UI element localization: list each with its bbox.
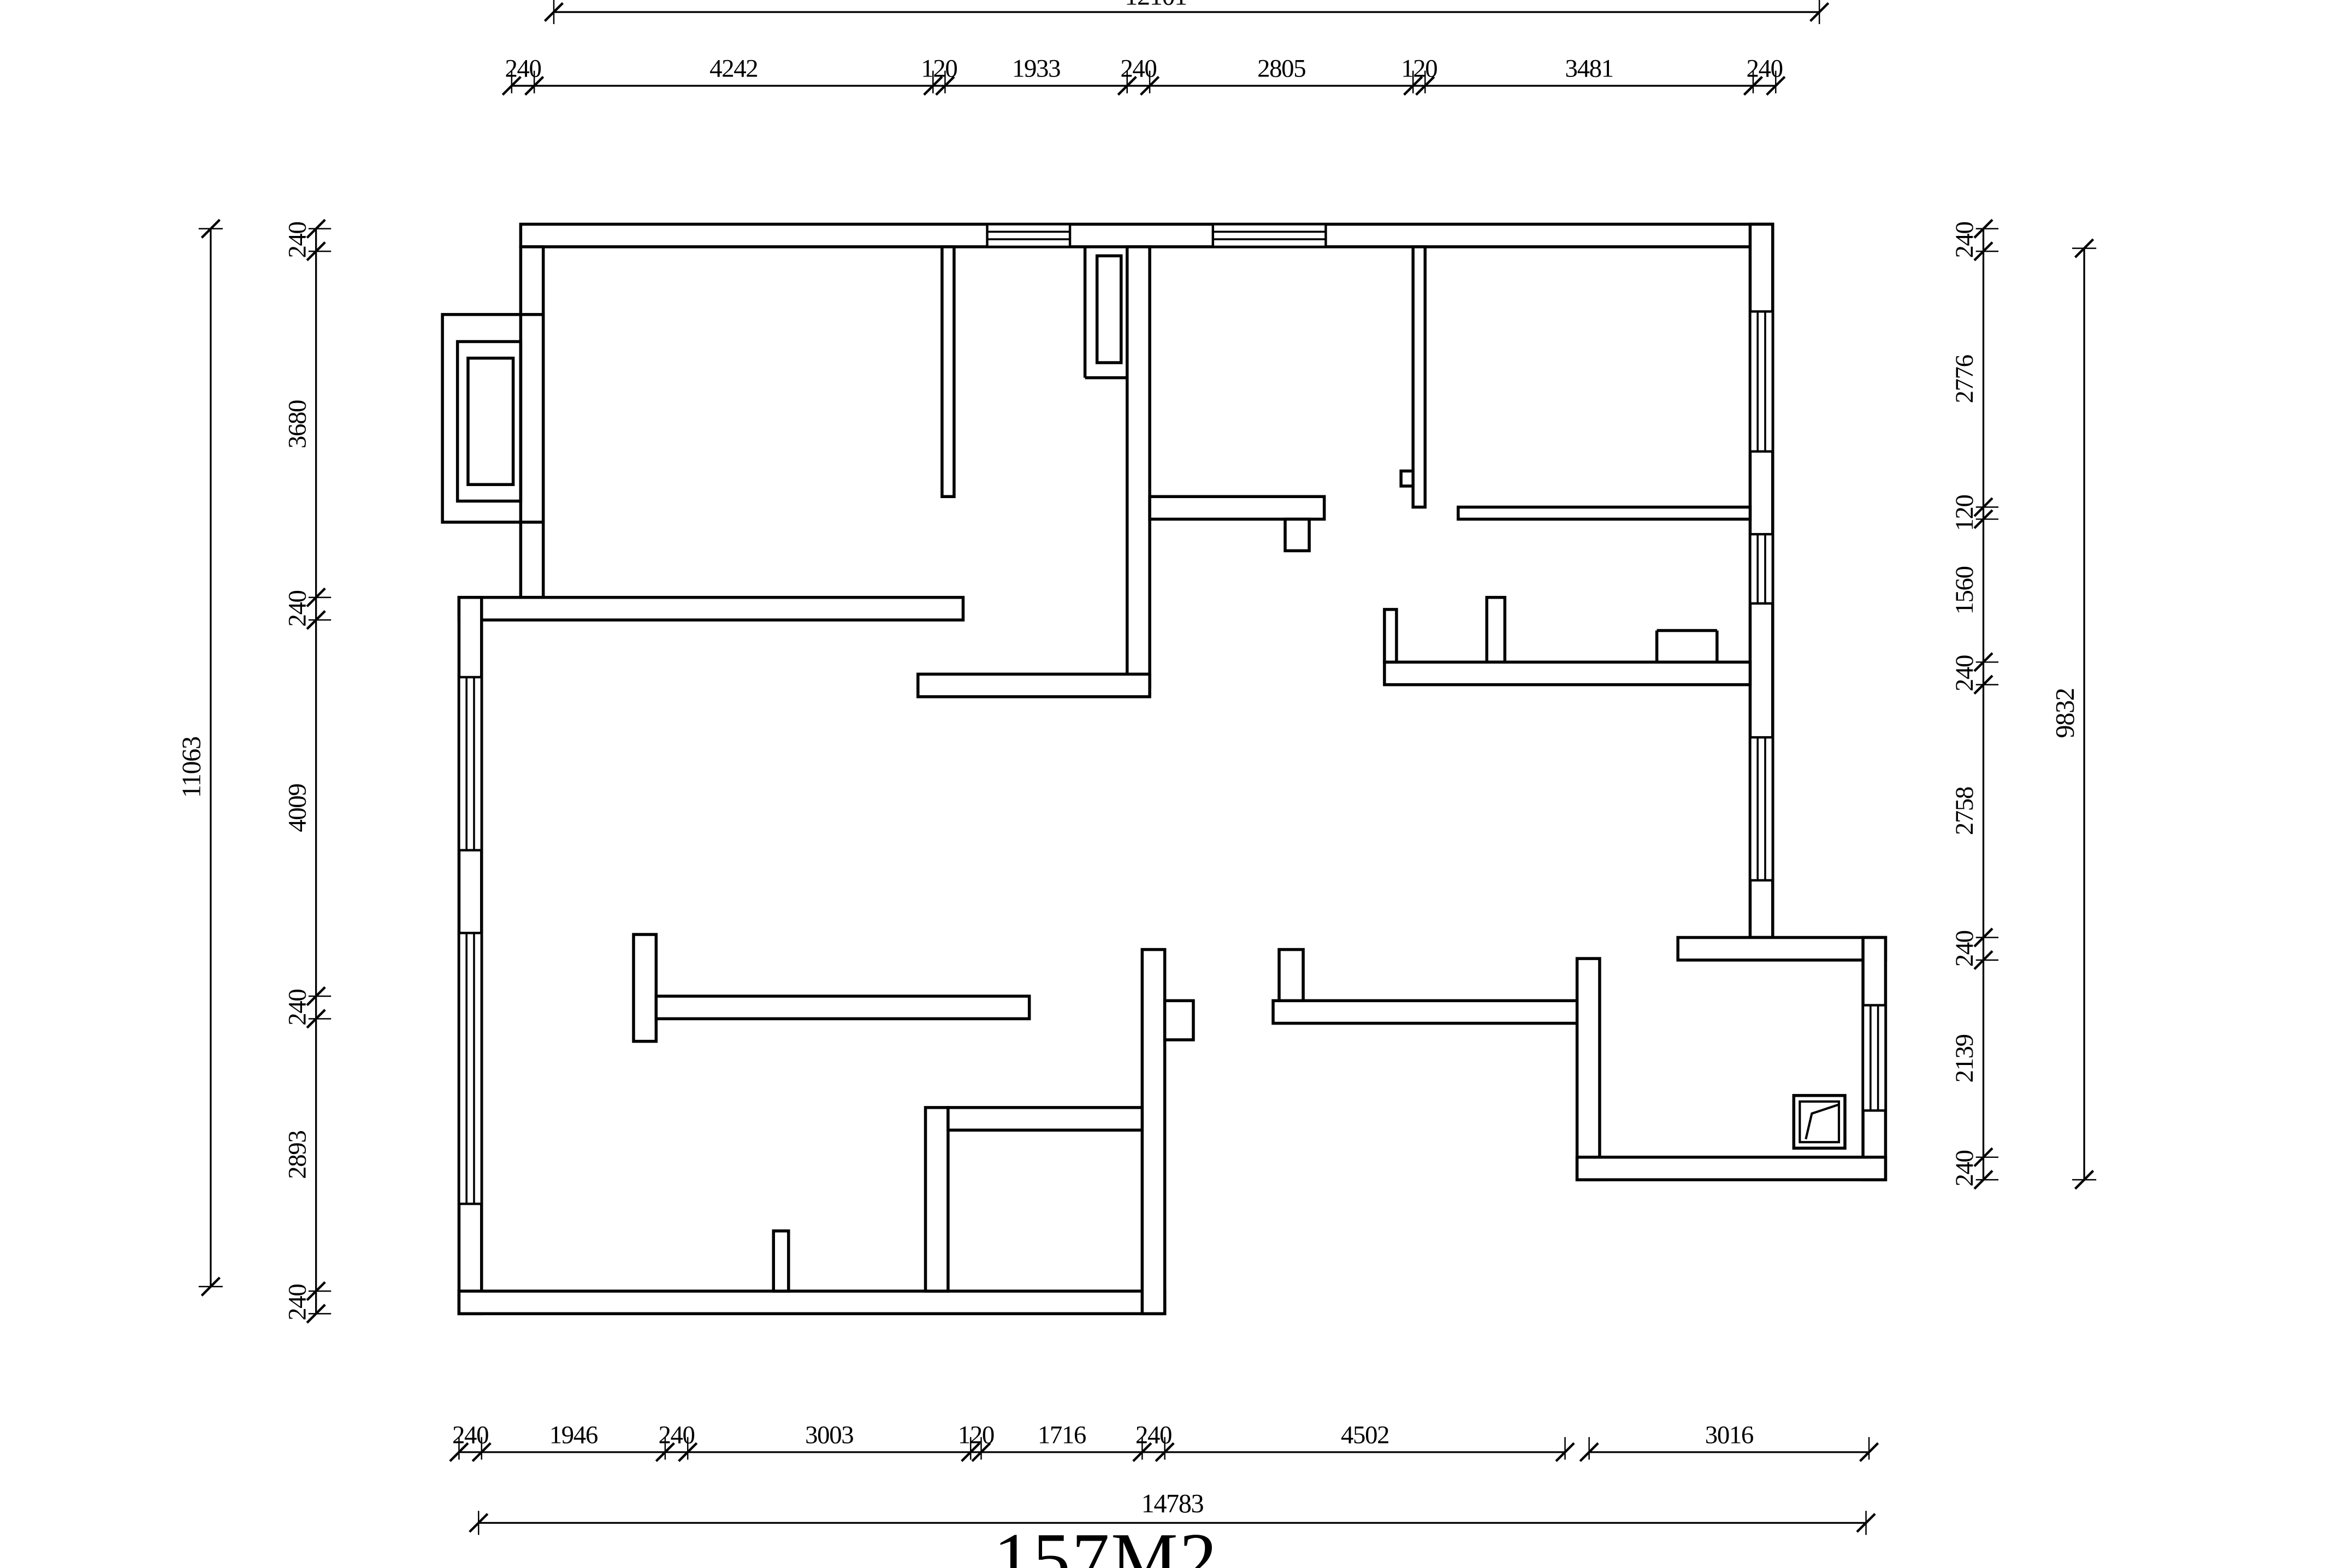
bedroom2-bedroom3-partition bbox=[1413, 247, 1425, 507]
window-right-1 bbox=[1750, 311, 1772, 451]
dim-label: 120 bbox=[958, 1421, 994, 1449]
dim-label: 240 bbox=[1950, 1150, 1979, 1186]
dim-label: 2893 bbox=[283, 1131, 311, 1179]
plan-title: 157M2 bbox=[993, 1517, 1218, 1568]
block-top-wall bbox=[1678, 938, 1885, 960]
bedroom1-hall-partition bbox=[942, 247, 954, 496]
shower-icon bbox=[1794, 1096, 1845, 1148]
window-top-1 bbox=[987, 224, 1070, 247]
dim-label: 120 bbox=[921, 55, 957, 83]
dim-total-label: 12101 bbox=[1125, 0, 1187, 10]
bottom-wall bbox=[459, 1291, 1164, 1313]
window-left-2-frame bbox=[459, 933, 481, 1204]
living-stub bbox=[773, 1231, 789, 1291]
dim-label: 4242 bbox=[709, 55, 758, 83]
dim-label: 4502 bbox=[1341, 1421, 1389, 1449]
dim-top-total: 12101 bbox=[545, 0, 1828, 24]
dim-label: 240 bbox=[1135, 1421, 1172, 1449]
bath1-bottom-wall bbox=[1385, 662, 1750, 684]
dim-total-label: 11063 bbox=[177, 737, 206, 798]
dim-total-label: 14783 bbox=[1141, 1489, 1204, 1518]
dim-label: 120 bbox=[1950, 495, 1979, 531]
top-wall bbox=[520, 224, 1772, 247]
dim-label: 3481 bbox=[1565, 55, 1613, 83]
block-left-wall bbox=[1577, 958, 1600, 1180]
dim-bottom-chain-2: 3016 bbox=[1580, 1421, 1878, 1461]
dim-label: 240 bbox=[283, 990, 311, 1026]
dim-right-chain: 2402776120156024027582402139240 bbox=[1950, 220, 1998, 1188]
window-right-2-frame bbox=[1750, 534, 1772, 603]
dim-label: 240 bbox=[1950, 655, 1979, 691]
dining-wall bbox=[918, 674, 1150, 696]
dim-label: 1560 bbox=[1950, 566, 1979, 614]
bedroom2-door-stub bbox=[1285, 519, 1309, 551]
dim-top-chain: 2404242120193324028051203481240 bbox=[502, 55, 1784, 95]
hall-wall-a bbox=[1142, 950, 1164, 1314]
dim-label: 120 bbox=[1401, 55, 1437, 83]
dim-label: 3680 bbox=[283, 400, 311, 448]
window-block-right-frame bbox=[1863, 1005, 1885, 1111]
bath1-top-wall bbox=[1458, 507, 1750, 519]
bath1-wall-end bbox=[1385, 610, 1397, 662]
window-top-2-frame bbox=[1213, 224, 1326, 247]
dim-label: 1933 bbox=[1012, 55, 1060, 83]
balcony-inner bbox=[468, 358, 513, 484]
dim-label: 240 bbox=[1747, 55, 1783, 83]
floor-plan-drawing: 2404242120193324028051203481240240194624… bbox=[0, 0, 2325, 1568]
dim-label: 2758 bbox=[1950, 787, 1979, 835]
dim-bottom-chain: 2401946240300312017162404502 bbox=[450, 1421, 1574, 1461]
bath2-left-wall bbox=[926, 1108, 948, 1291]
fixtures-layer bbox=[1794, 1096, 1845, 1148]
window-right-3 bbox=[1750, 737, 1772, 880]
dim-label: 240 bbox=[283, 1285, 311, 1321]
window-right-3-frame bbox=[1750, 737, 1772, 880]
block-bottom-wall bbox=[1577, 1157, 1886, 1180]
floor-plan-page: 2404242120193324028051203481240240194624… bbox=[0, 0, 2325, 1568]
dim-label: 240 bbox=[283, 222, 311, 258]
dim-label: 240 bbox=[283, 590, 311, 626]
partition-tab bbox=[1401, 471, 1413, 486]
dim-label: 240 bbox=[505, 55, 541, 83]
corridor-wall-b bbox=[1273, 1001, 1588, 1023]
dim-label: 240 bbox=[658, 1421, 694, 1449]
kitchen-wall-horizontal bbox=[656, 996, 1029, 1019]
dim-total-label: 9832 bbox=[2051, 689, 2080, 738]
window-right-2 bbox=[1750, 534, 1772, 603]
kitchen-wall-vertical bbox=[634, 934, 656, 1042]
window-left-2 bbox=[459, 933, 481, 1204]
bath1-left-stub bbox=[1487, 597, 1505, 662]
bedroom2-bottom-wall bbox=[1150, 496, 1324, 519]
dim-left-total: 11063 bbox=[177, 220, 222, 1295]
dim-label: 240 bbox=[452, 1421, 488, 1449]
dim-label: 240 bbox=[1950, 222, 1979, 258]
window-left-1-frame bbox=[459, 677, 481, 850]
entry-pier-inner bbox=[1097, 256, 1121, 363]
dim-label: 240 bbox=[1120, 55, 1156, 83]
window-right-1-frame bbox=[1750, 311, 1772, 451]
dim-label: 3003 bbox=[805, 1421, 853, 1449]
dim-label: 240 bbox=[1950, 931, 1979, 967]
bath2-top-wall bbox=[948, 1108, 1142, 1130]
dim-label: 2776 bbox=[1950, 354, 1979, 403]
walls-layer bbox=[442, 224, 1885, 1314]
central-wall bbox=[1127, 247, 1150, 687]
dim-right-total: 9832 bbox=[2051, 239, 2096, 1189]
hall-wall-a-tab bbox=[1165, 1001, 1193, 1040]
dim-label: 4009 bbox=[283, 784, 311, 832]
window-top-1-frame bbox=[987, 224, 1070, 247]
dim-label: 2805 bbox=[1257, 55, 1305, 83]
windows-layer bbox=[459, 224, 1885, 1204]
window-left-1 bbox=[459, 677, 481, 850]
bedroom1-left-wall bbox=[520, 247, 543, 597]
window-block-right bbox=[1863, 1005, 1885, 1111]
dim-label: 1716 bbox=[1038, 1421, 1086, 1449]
bedroom1-bottom-wall bbox=[459, 597, 963, 620]
dim-label: 3016 bbox=[1705, 1421, 1754, 1449]
window-top-2 bbox=[1213, 224, 1326, 247]
dim-left-chain: 240368024040092402893240 bbox=[283, 220, 331, 1323]
dim-label: 2139 bbox=[1950, 1034, 1979, 1082]
corridor-stub bbox=[1279, 950, 1303, 1001]
dim-label: 1946 bbox=[549, 1421, 598, 1449]
